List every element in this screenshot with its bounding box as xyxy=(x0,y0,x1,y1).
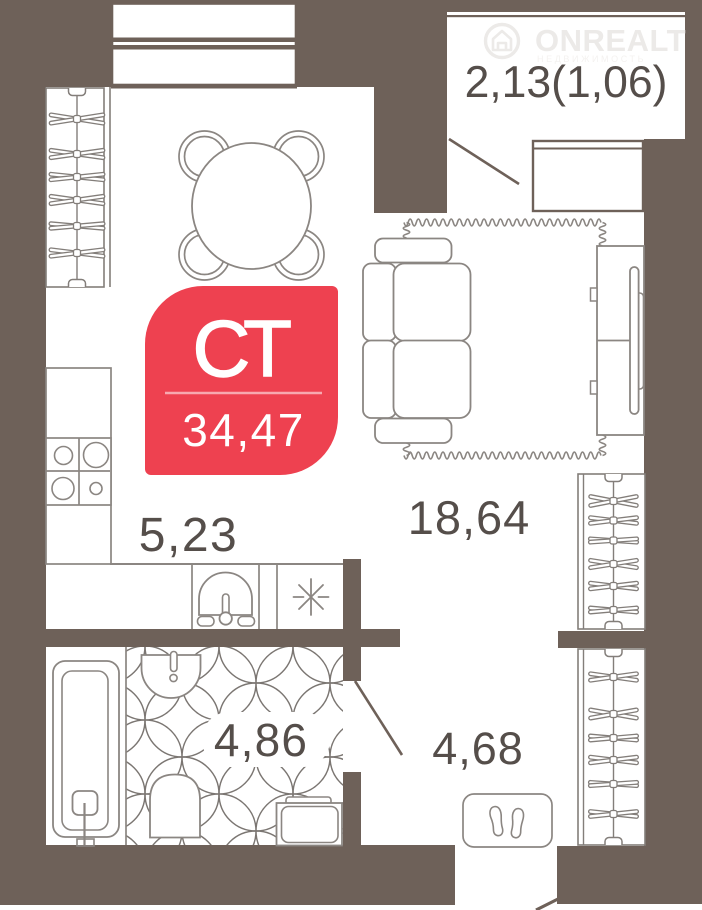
svg-text:ONREALT: ONREALT xyxy=(535,23,686,58)
svg-text:18,64: 18,64 xyxy=(408,491,531,544)
svg-text:2,13(1,06): 2,13(1,06) xyxy=(465,58,668,107)
svg-text:4,86: 4,86 xyxy=(214,714,308,766)
svg-text:СТ: СТ xyxy=(193,304,292,393)
svg-text:34,47: 34,47 xyxy=(182,404,305,456)
svg-text:4,68: 4,68 xyxy=(432,723,524,774)
svg-text:5,23: 5,23 xyxy=(139,509,238,562)
